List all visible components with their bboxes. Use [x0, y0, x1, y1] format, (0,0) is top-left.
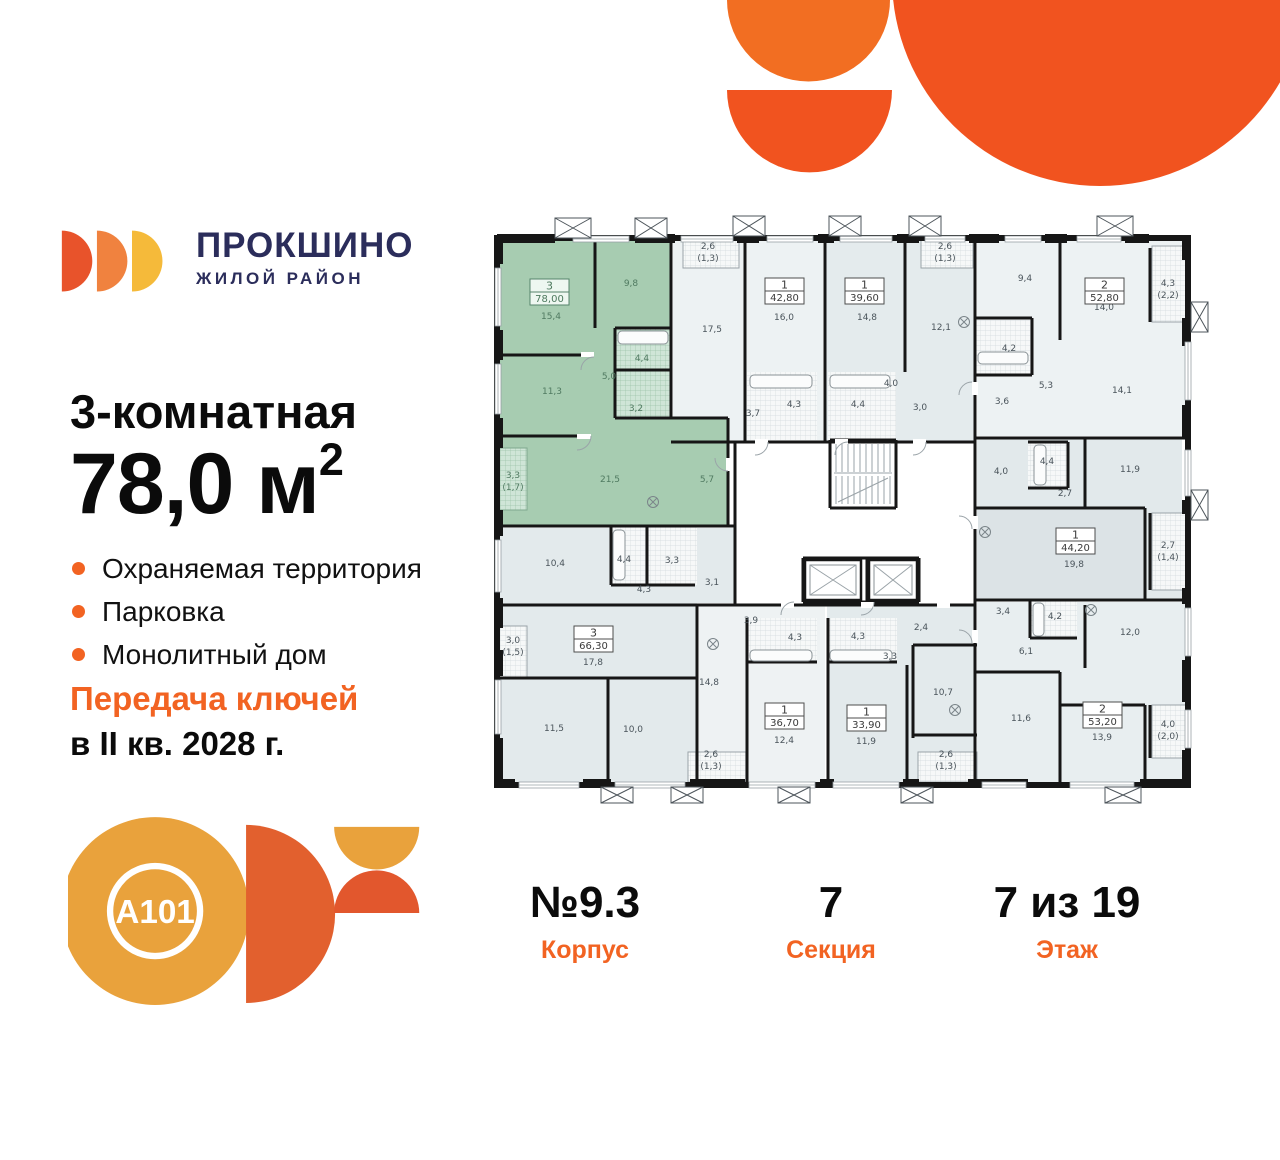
unit-total-area: 36,70 — [770, 718, 799, 729]
stat-section-label: Секция — [726, 936, 936, 965]
decor-halfcircle-small-top — [727, 0, 890, 82]
a101-halfcircle — [246, 825, 335, 1003]
unit-rooms-count: 1 — [781, 704, 788, 717]
room-area-label: 13,9 — [1092, 733, 1112, 743]
room-area-label: 4,3 — [787, 400, 801, 410]
room-area-label: 4,4 — [851, 400, 866, 410]
unit-rooms-count: 1 — [861, 279, 868, 292]
room-area-label: 4,0 — [994, 467, 1009, 477]
decor-shapes — [0, 0, 1280, 200]
unit-info-box-apartment-39-60: 139,60 — [845, 278, 884, 304]
room-area-label: 19,8 — [1064, 560, 1084, 570]
area-unit: м — [256, 436, 319, 532]
room-area-label: 10,4 — [545, 559, 565, 569]
floor-plan: 15,49,811,34,45,03,221,55,73,3(1,7)2,6(1… — [485, 210, 1215, 805]
room-area-label: 3,9 — [744, 616, 759, 626]
feature-item: Монолитный дом — [72, 638, 422, 671]
room-area-label: 4,2 — [1048, 612, 1062, 622]
unit-rooms-count: 1 — [863, 706, 870, 719]
room-area-label: (2,2) — [1157, 291, 1178, 301]
room-area-label: 16,0 — [774, 313, 794, 323]
room-area-label: 3,7 — [746, 409, 760, 419]
stat-section: 7 Секция — [726, 878, 936, 965]
unit-total-area: 39,60 — [850, 293, 879, 304]
room-area-label: 4,4 — [617, 555, 632, 565]
room-area-label: 2,7 — [1058, 489, 1072, 499]
room-area-label: 12,4 — [774, 736, 794, 746]
room-area-label: 10,7 — [933, 688, 953, 698]
room-area-label: 3,1 — [705, 578, 719, 588]
stat-building: №9.3 Корпус — [480, 878, 690, 965]
unit-total-area: 33,90 — [852, 720, 881, 731]
unit-total-area: 78,00 — [535, 294, 564, 305]
room-area-label: 21,5 — [600, 475, 620, 485]
room-area-label: 4,4 — [635, 354, 650, 364]
room-area-label: 4,2 — [1002, 344, 1016, 354]
room-area-label: 3,0 — [506, 636, 521, 646]
unit-info-box-apartment-33-90: 133,90 — [847, 705, 886, 731]
room-area-label: (1,3) — [697, 254, 718, 264]
unit-info-box-apartment-66-30: 366,30 — [574, 626, 613, 652]
room-area-label: 12,1 — [931, 323, 951, 333]
brand-name: ПРОКШИНО — [196, 228, 413, 264]
unit-info-box-apartment-52-80: 252,80 — [1085, 278, 1124, 304]
developer-logo: A101 — [68, 812, 430, 1012]
room-area-label: (1,3) — [934, 254, 955, 264]
stat-floor-value: 7 из 19 — [962, 878, 1172, 928]
unit-info-box-apartment-42-80: 142,80 — [765, 278, 804, 304]
room-area-label: 11,6 — [1011, 714, 1031, 724]
room-area-label: (1,4) — [1157, 553, 1178, 563]
room-area-label: (1,7) — [502, 483, 523, 493]
feature-label: Парковка — [102, 595, 225, 628]
unit-rooms-count: 2 — [1099, 703, 1106, 716]
room-area-label: 14,1 — [1112, 386, 1132, 396]
room-area-label: (1,3) — [935, 762, 956, 772]
feature-item: Охраняемая территория — [72, 552, 422, 585]
unit-rooms-count: 1 — [781, 279, 788, 292]
area-value: 78,0 — [70, 436, 233, 532]
unit-total-area: 66,30 — [579, 641, 608, 652]
unit-fills — [497, 238, 1186, 783]
unit-rooms-count: 3 — [590, 627, 597, 640]
a101-petal-bottom — [334, 870, 419, 913]
listing-card: ПРОКШИНО ЖИЛОЙ РАЙОН 3-комнатная 78,0 м2… — [0, 0, 1280, 1160]
room-area-label: 3,3 — [883, 652, 897, 662]
room-area-label: 10,0 — [623, 725, 643, 735]
room-area-label: 5,3 — [1039, 381, 1053, 391]
keys-line1: Передача ключей — [70, 680, 358, 718]
unit-total-area: 44,20 — [1061, 543, 1090, 554]
stat-floor-label: Этаж — [962, 936, 1172, 965]
decor-halfcircle-small-bottom — [727, 90, 892, 172]
room-area-label: (2,0) — [1157, 732, 1178, 742]
room-area-label: 5,7 — [700, 475, 714, 485]
room-area-label: 15,4 — [541, 312, 561, 322]
unit-total-area: 53,20 — [1088, 717, 1117, 728]
room-area-label: 3,4 — [996, 607, 1011, 617]
feature-label: Монолитный дом — [102, 638, 327, 671]
room-area-label: 2,6 — [938, 242, 953, 252]
stat-building-value: №9.3 — [480, 878, 690, 928]
feature-list: Охраняемая территория Парковка Монолитны… — [72, 552, 422, 681]
feature-label: Охраняемая территория — [102, 552, 422, 585]
room-area-label: 3,0 — [913, 403, 928, 413]
room-area-label: 2,6 — [701, 242, 716, 252]
room-area-label: (1,5) — [502, 648, 523, 658]
room-area-label: 2,6 — [939, 750, 954, 760]
room-area-label: 6,1 — [1019, 647, 1033, 657]
room-area-label: 11,3 — [542, 387, 562, 397]
room-area-label: 2,7 — [1161, 541, 1175, 551]
room-area-label: 12,0 — [1120, 628, 1140, 638]
a101-text: A101 — [115, 894, 195, 931]
room-area-label: 9,4 — [1018, 274, 1033, 284]
room-area-label: 14,8 — [857, 313, 877, 323]
room-area-label: 9,8 — [624, 279, 639, 289]
room-area-label: 11,9 — [856, 737, 876, 747]
unit-info-box-apartment-44-20: 144,20 — [1056, 528, 1095, 554]
brand-logo-shapes-icon — [60, 226, 180, 298]
bullet-dot-icon — [72, 562, 85, 575]
unit-total-area: 52,80 — [1090, 293, 1119, 304]
room-area-label: 3,3 — [665, 556, 679, 566]
stat-floor: 7 из 19 Этаж — [962, 878, 1172, 965]
unit-info-box-apartment-78-00-selected: 378,00 — [530, 279, 569, 305]
room-area-label: 2,6 — [704, 750, 719, 760]
room-area-label: 14,8 — [699, 678, 719, 688]
unit-rooms-count: 2 — [1101, 279, 1108, 292]
keys-handover: Передача ключей в II кв. 2028 г. — [70, 680, 358, 763]
room-area-label: 4,3 — [851, 632, 865, 642]
unit-total-area: 42,80 — [770, 293, 799, 304]
room-area-label: (1,3) — [700, 762, 721, 772]
area-sup: 2 — [319, 434, 344, 485]
room-area-label: 4,0 — [1161, 720, 1176, 730]
stat-building-label: Корпус — [480, 936, 690, 965]
unit-info-box-apartment-53-20: 253,20 — [1083, 702, 1122, 728]
room-area-label: 4,0 — [884, 379, 899, 389]
listing-title: 3-комнатная — [70, 384, 357, 439]
bullet-dot-icon — [72, 605, 85, 618]
room-area-label: 3,3 — [506, 471, 520, 481]
room-area-label: 4,3 — [637, 585, 651, 595]
unit-info-box-apartment-36-70: 136,70 — [765, 703, 804, 729]
elevator-icons — [805, 560, 917, 600]
room-area-label: 17,8 — [583, 658, 603, 668]
brand-logo: ПРОКШИНО ЖИЛОЙ РАЙОН — [60, 226, 413, 298]
room-area-label: 11,5 — [544, 724, 564, 734]
feature-item: Парковка — [72, 595, 422, 628]
brand-subtitle: ЖИЛОЙ РАЙОН — [196, 269, 413, 289]
room-area-label: 2,4 — [914, 623, 929, 633]
room-area-label: 3,6 — [995, 397, 1010, 407]
room-area-label: 3,2 — [629, 404, 643, 414]
stat-section-value: 7 — [726, 878, 936, 928]
unit-rooms-count: 3 — [546, 280, 553, 293]
room-area-label: 5,0 — [602, 372, 617, 382]
listing-area: 78,0 м2 — [70, 434, 344, 534]
room-area-label: 17,5 — [702, 325, 722, 335]
a101-petal-top — [334, 827, 419, 870]
room-area-label: 4,3 — [1161, 279, 1175, 289]
unit-rooms-count: 1 — [1072, 529, 1079, 542]
keys-line2: в II кв. 2028 г. — [70, 725, 358, 763]
room-area-label: 4,3 — [788, 633, 802, 643]
room-area-label: 11,9 — [1120, 465, 1140, 475]
bullet-dot-icon — [72, 648, 85, 661]
decor-circle-large — [892, 0, 1280, 186]
room-area-label: 4,4 — [1040, 457, 1055, 467]
